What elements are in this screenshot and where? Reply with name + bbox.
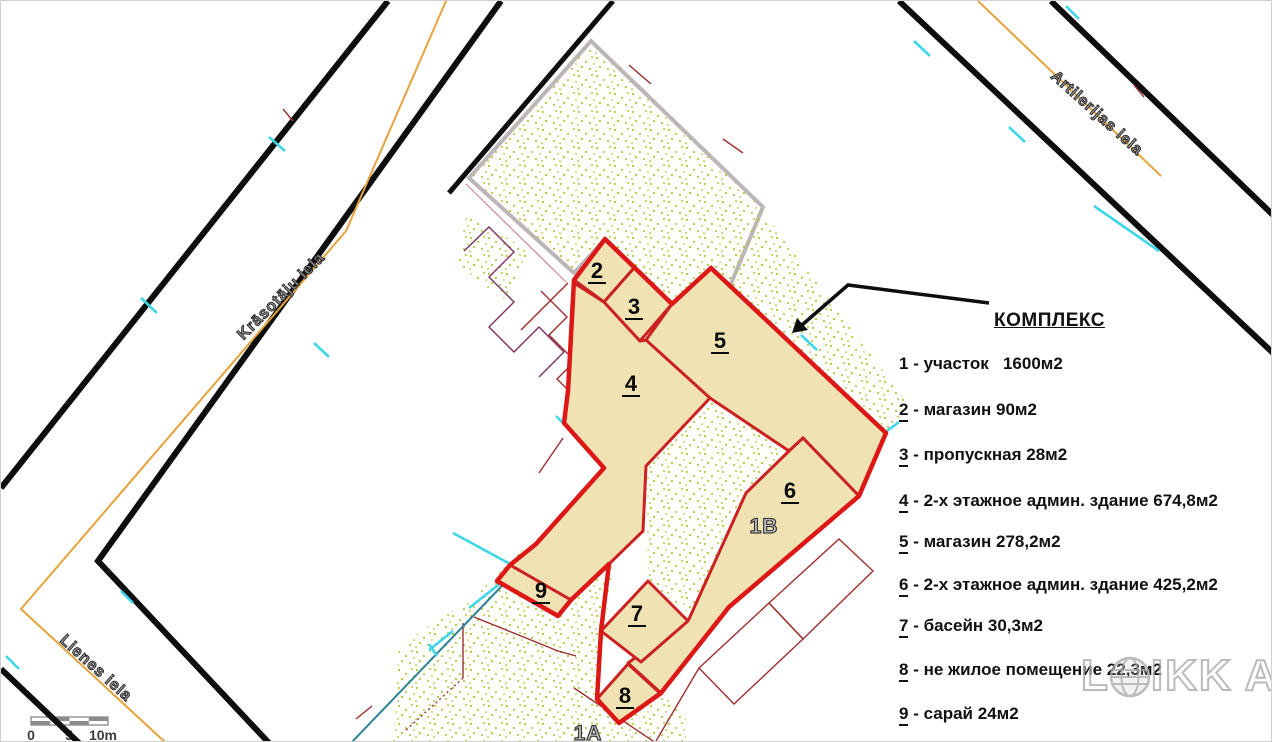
scale-label-0: 0	[27, 727, 35, 742]
street-edge	[1, 669, 79, 742]
legend-item-text: магазин 278,2м2	[924, 532, 1061, 551]
legend-item-text: магазин 90м2	[924, 400, 1037, 419]
legend-item-6: 6 - 2-х этажное админ. здание 425,2м2	[899, 575, 1218, 597]
watermark-prefix: L	[1081, 651, 1110, 701]
legend-item-5: 5 - магазин 278,2м2	[899, 532, 1061, 554]
building-number-8: 8	[619, 683, 631, 708]
unit-label-1a: 1A	[574, 722, 603, 742]
legend-item-2: 2 - магазин 90м2	[899, 400, 1037, 422]
watermark: L IKK A	[1081, 651, 1272, 701]
building-number-6: 6	[784, 478, 796, 503]
legend-item-text: басейн 30,3м2	[924, 616, 1043, 635]
legend-item-text: 2-х этажное админ. здание 674,8м2	[924, 491, 1218, 510]
legend-item-text: 2-х этажное админ. здание 425,2м2	[924, 575, 1218, 594]
building-number-7: 7	[631, 601, 643, 626]
legend-item-7: 7 - басейн 30,3м2	[899, 616, 1043, 638]
legend-title: КОМПЛЕКС	[994, 310, 1105, 332]
legend-item-text: участок 1600м2	[924, 354, 1063, 373]
legend-item-text: пропускная 28м2	[924, 445, 1068, 464]
site-plan-map: 0 5 10m	[1, 1, 1272, 742]
street-name-krasotaju: Krāsotāju iela	[234, 249, 328, 343]
legend-item-1: 1 - участок 1600м2	[899, 354, 1063, 374]
vegetation-patch	[458, 216, 531, 301]
legend-item-text: сарай 24м2	[924, 704, 1019, 723]
legend-item-9: 9 - сарай 24м2	[899, 704, 1019, 726]
legend-item-4: 4 - 2-х этажное админ. здание 674,8м2	[899, 491, 1218, 513]
scale-label-10m: 10m	[89, 727, 117, 742]
building-number-5: 5	[714, 328, 726, 353]
legend-item-3: 3 - пропускная 28м2	[899, 445, 1067, 467]
street-name-lienes: Lienes iela	[56, 632, 135, 705]
watermark-suffix: IKK	[1151, 651, 1233, 701]
building-number-2: 2	[591, 258, 603, 283]
globe-icon	[1107, 653, 1153, 699]
site-plan-page: 0 5 10m	[0, 0, 1272, 742]
building-number-9: 9	[535, 578, 547, 603]
street-edge	[1, 1, 388, 488]
watermark-trailing: A	[1245, 651, 1272, 701]
building-number-4: 4	[625, 371, 638, 396]
building-number-3: 3	[628, 294, 640, 319]
unit-label-1b: 1B	[750, 515, 779, 538]
